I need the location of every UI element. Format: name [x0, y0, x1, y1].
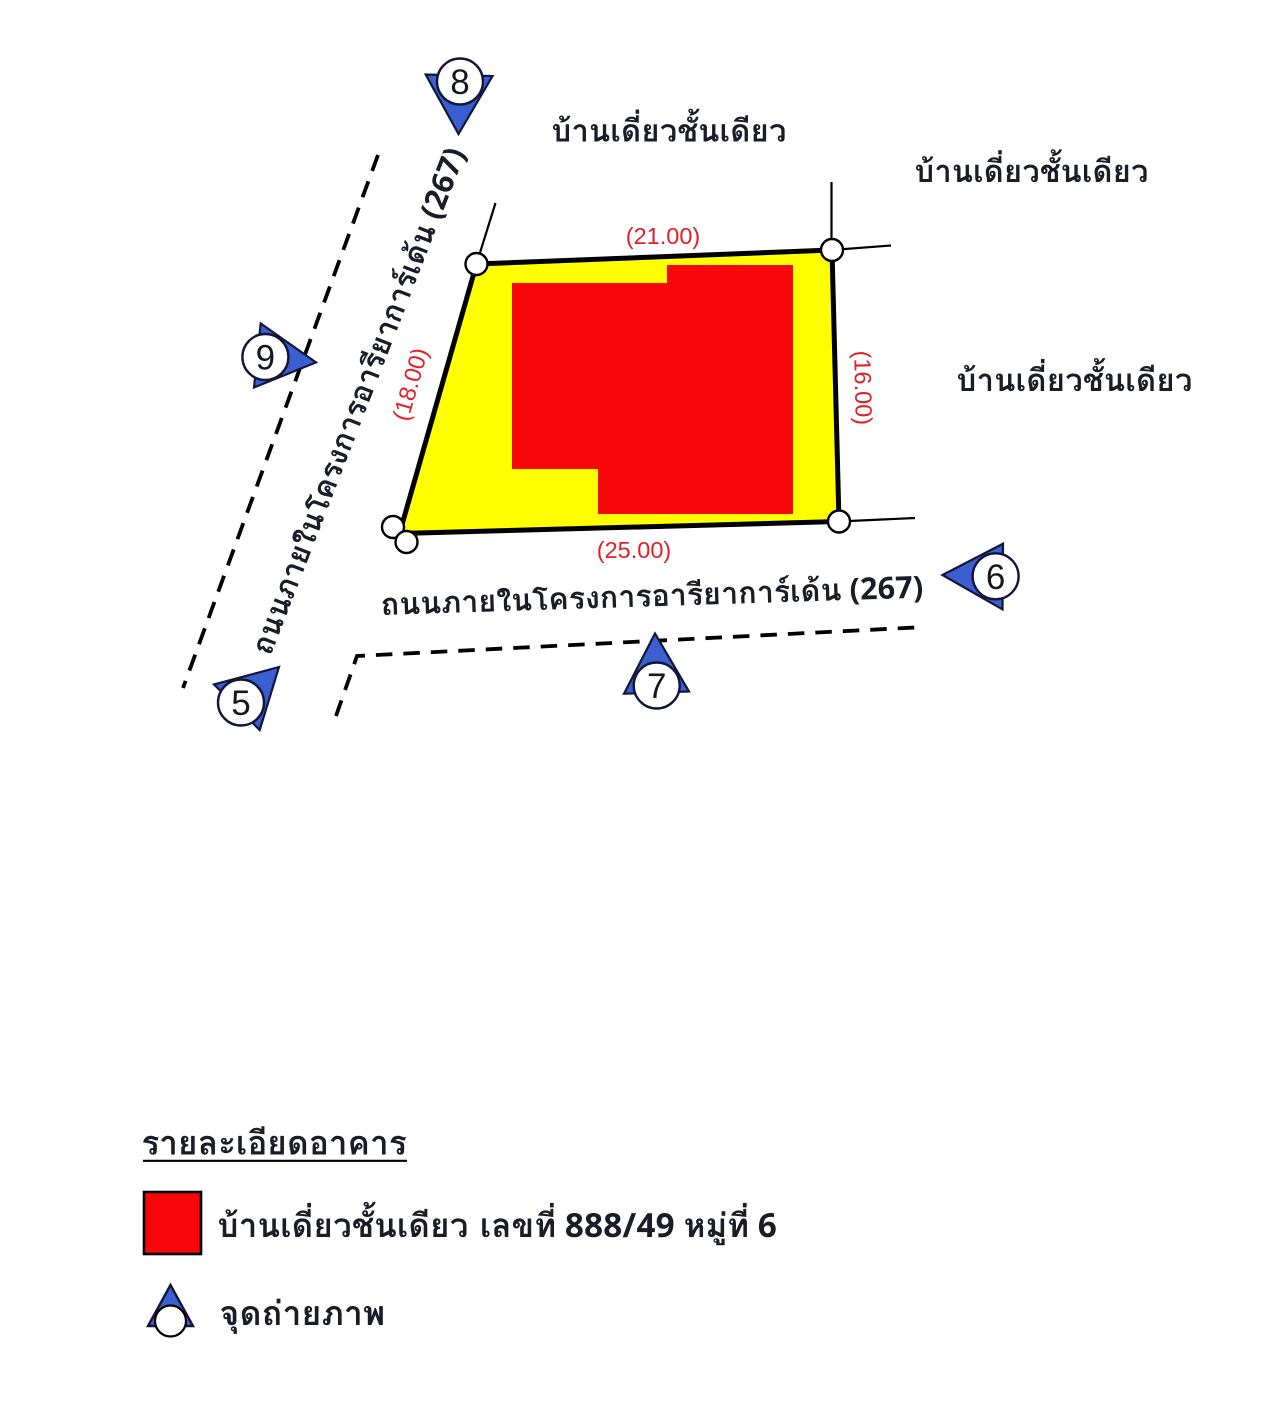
svg-text:8: 8	[450, 63, 469, 102]
svg-text:(18.00): (18.00)	[388, 345, 434, 424]
svg-text:(16.00): (16.00)	[849, 350, 877, 425]
svg-text:(25.00): (25.00)	[597, 537, 671, 563]
svg-text:7: 7	[647, 667, 666, 706]
svg-text:6: 6	[986, 558, 1005, 597]
svg-text:(21.00): (21.00)	[626, 223, 700, 249]
svg-text:5: 5	[231, 684, 250, 723]
svg-text:9: 9	[256, 339, 275, 378]
